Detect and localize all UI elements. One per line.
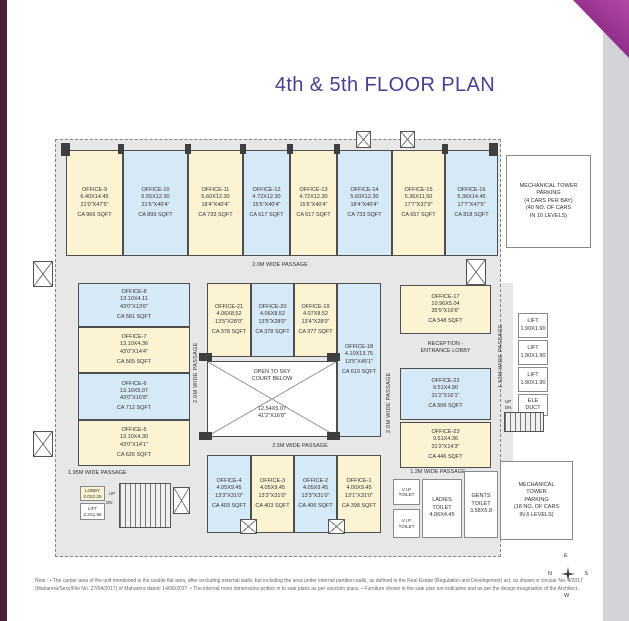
lift-2: LIFT 1.90X1.90 — [518, 340, 548, 365]
office-3: OFFICE-3 4.05X9.45 13'3"X31'0" CA 403 SQ… — [251, 455, 294, 533]
vip-toilet-2: V.I.P TOILET — [393, 509, 420, 538]
office-7-name: OFFICE-7 — [121, 334, 146, 341]
lift-1: LIFT 1.90X1.90 — [518, 313, 548, 338]
office-14-dims: 5.60X12.30 18'4"X40'4" — [350, 194, 378, 208]
office-19-area: CA 377 SQFT — [298, 329, 332, 336]
office-6: OFFICE-6 13.10X5.07 43'0"X16'8" CA 712 S… — [78, 373, 190, 420]
office-9-name: OFFICE-9 — [82, 187, 107, 194]
office-19-name: OFFICE-19 — [301, 304, 329, 311]
office-4-name: OFFICE-4 — [216, 478, 241, 485]
office-11-area: CA 733 SQFT — [198, 212, 232, 219]
office-15: OFFICE-15 5.36X11.50 17'7"X37'9" CA 657 … — [392, 150, 445, 256]
office-11-name: OFFICE-11 — [202, 187, 230, 194]
office-11: OFFICE-11 5.60X12.30 18'4"X40'4" CA 733 … — [188, 150, 243, 256]
wall-pier — [442, 144, 448, 154]
office-21-area: CA 378 SQFT — [212, 329, 246, 336]
office-22: OFFICE-22 9.51X4.90 31'2"X16'1" CA 506 S… — [400, 368, 491, 420]
lift-3: LIFT 1.90X1.90 — [518, 367, 548, 392]
office-18-name: OFFICE-18 — [345, 344, 373, 351]
stairs-left — [119, 483, 171, 528]
wall-pier — [240, 144, 246, 154]
passage-far-right-vertical-label: 1.52M WIDE PASSAGE — [498, 302, 504, 410]
office-10: OFFICE-10 6.55X12.30 21'6"X40'4" CA 899 … — [123, 150, 188, 256]
office-23-name: OFFICE-23 — [431, 429, 459, 436]
shaft-bottom-1 — [240, 519, 257, 534]
stairs-right-up-label: UP — [505, 399, 511, 405]
office-16-name: OFFICE-16 — [457, 187, 485, 194]
office-19-dims: 4.07X8.52 13'4"X28'0" — [301, 311, 329, 325]
office-16: OFFICE-16 5.36X14.45 17'7"X47'5" CA 818 … — [445, 150, 498, 256]
office-3-name: OFFICE-3 — [260, 478, 285, 485]
office-13-area: CA 617 SQFT — [296, 212, 330, 219]
office-21-dims: 4.06X8.52 13'5"X28'0" — [215, 311, 243, 325]
stairs-right-dn-label: DN — [505, 405, 512, 411]
office-17-area: CA 548 SQFT — [428, 318, 462, 325]
wall-pier — [61, 143, 70, 156]
court-label: OPEN TO SKY COURT BELOW — [208, 369, 336, 383]
duct-shaft-bottom-left — [173, 487, 190, 514]
office-6-dims: 13.10X5.07 43'0"X16'8" — [120, 388, 148, 402]
disclaimer-note-line1: Note : • The carpet area of the unit men… — [35, 578, 583, 586]
shaft-left-bottom — [33, 431, 53, 457]
office-13: OFFICE-13 4.72X12.30 15'6"X40'4" CA 617 … — [290, 150, 337, 256]
office-23: OFFICE-23 9.51X4.36 31'2"X14'3" CA 446 S… — [400, 422, 491, 468]
office-5-area: CA 626 SQFT — [117, 452, 151, 459]
disclaimer-note-line2: (Maharera/Secy/File No. 27/04/2017) of M… — [35, 586, 583, 594]
office-7-area: CA 565 SQFT — [117, 359, 151, 366]
office-22-name: OFFICE-22 — [431, 378, 459, 385]
mechanical-tower-parking-top: MECHANICAL TOWER PARKING (4 CARS PER BAY… — [506, 155, 591, 248]
stairs-right — [504, 412, 544, 432]
office-18: OFFICE-18 4.10X13.75 13'5"X45'1" CA 610 … — [337, 283, 381, 437]
shaft-top-2 — [400, 131, 415, 148]
office-2-dims: 4.05X9.45 13'3"X31'0" — [301, 485, 329, 499]
shaft-left-top — [33, 261, 53, 287]
office-23-area: CA 446 SQFT — [428, 454, 462, 461]
office-2-area: CA 406 SQFT — [298, 503, 332, 510]
office-8-area: CA 581 SQFT — [117, 314, 151, 321]
office-23-dims: 9.51X4.36 31'2"X14'3" — [431, 436, 459, 450]
office-19: OFFICE-19 4.07X8.52 13'4"X28'0" CA 377 S… — [294, 283, 337, 357]
office-17: OFFICE-17 10.96X5.04 35'9"X16'6" CA 548 … — [400, 285, 491, 334]
office-13-dims: 4.72X12.30 15'6"X40'4" — [299, 194, 327, 208]
wall-pier — [185, 144, 191, 154]
office-6-name: OFFICE-6 — [121, 381, 146, 388]
mechanical-tower-parking-bottom: MECHANICAL TOWER PARKING (18 NO. OF CARS… — [500, 461, 573, 540]
office-22-area: CA 506 SQFT — [428, 403, 462, 410]
shaft-right-passage — [466, 259, 486, 285]
office-14-area: CA 733 SQFT — [347, 212, 381, 219]
left-edge-bar — [0, 0, 7, 621]
office-7-dims: 13.10X4.36 43'0"X14'4" — [120, 341, 148, 355]
office-10-name: OFFICE-10 — [141, 187, 169, 194]
office-12-area: CA 617 SQFT — [249, 212, 283, 219]
office-3-area: CA 403 SQFT — [255, 503, 289, 510]
office-10-area: CA 899 SQFT — [138, 212, 172, 219]
office-5-name: OFFICE-5 — [121, 427, 146, 434]
office-14: OFFICE-14 5.60X12.30 18'4"X40'4" CA 733 … — [337, 150, 392, 256]
compass-south-label: S — [584, 571, 588, 577]
passage-right-vertical-label: 2.0M WIDE PASSAGE — [386, 348, 392, 458]
office-18-dims: 4.10X13.75 13'5"X45'1" — [345, 351, 373, 365]
lift-bottom-left: LIFT 2.2X1.95 — [80, 503, 105, 520]
office-21: OFFICE-21 4.06X8.52 13'5"X28'0" CA 378 S… — [207, 283, 251, 357]
office-15-dims: 5.36X11.50 17'7"X37'9" — [404, 194, 432, 208]
passage-bottom-left-label: 1.95M WIDE PASSAGE — [68, 470, 178, 477]
office-17-name: OFFICE-17 — [431, 294, 459, 301]
office-16-area: CA 818 SQFT — [454, 212, 488, 219]
passage-mid-label: 2.5M WIDE PASSAGE — [240, 443, 360, 450]
office-9-dims: 6.40X14.45 21'0"X47'5" — [80, 194, 108, 208]
passage-top-label: 2.0M WIDE PASSAGE — [220, 262, 340, 269]
office-20: OFFICE-20 4.06X8.52 13'5"X28'0" CA 378 S… — [251, 283, 294, 357]
reception-label: RECEPTION - ENTRANCE LOBBY — [400, 341, 491, 355]
court-dims: 12.54X5.07 41'2"X16'8" — [208, 406, 336, 420]
office-3-dims: 4.05X9.45 13'3"X31'0" — [258, 485, 286, 499]
wall-pier — [489, 143, 498, 156]
stairs-left-up-label: UP — [109, 491, 115, 497]
right-page-margin — [603, 0, 629, 621]
office-5-dims: 13.10X4.30 43'0"X14'1" — [120, 434, 148, 448]
open-to-sky-court: OPEN TO SKY COURT BELOW 12.54X5.07 41'2"… — [207, 361, 337, 437]
office-9: OFFICE-9 6.40X14.45 21'0"X47'5" CA 966 S… — [66, 150, 123, 256]
shaft-bottom-2 — [328, 519, 345, 534]
office-12-name: OFFICE-12 — [252, 187, 280, 194]
wall-pier — [327, 353, 340, 361]
office-21-name: OFFICE-21 — [215, 304, 243, 311]
office-12: OFFICE-12 4.72X12.30 15'6"X40'4" CA 617 … — [243, 150, 290, 256]
passage-left-vertical-label: 2.0M WIDE PASSAGE — [193, 300, 199, 445]
office-2-name: OFFICE-2 — [303, 478, 328, 485]
office-20-name: OFFICE-20 — [258, 304, 286, 311]
page-title: 4th & 5th FLOOR PLAN — [250, 74, 520, 97]
lobby-box: LOBBY 2.0X2.25 — [80, 486, 105, 501]
office-18-area: CA 610 SQFT — [342, 369, 376, 376]
wall-pier — [199, 353, 212, 361]
office-20-area: CA 378 SQFT — [255, 329, 289, 336]
wall-pier — [334, 144, 340, 154]
office-12-dims: 4.72X12.30 15'6"X40'4" — [252, 194, 280, 208]
stairs-left-dn-label: DN — [106, 500, 113, 506]
office-8-dims: 13.10X4.11 43'0"X13'6" — [120, 296, 148, 310]
office-10-dims: 6.55X12.30 21'6"X40'4" — [141, 194, 169, 208]
office-4-area: CA 403 SQFT — [212, 503, 246, 510]
office-5: OFFICE-5 13.10X4.30 43'0"X14'1" CA 626 S… — [78, 420, 190, 466]
office-1-name: OFFICE-1 — [346, 478, 371, 485]
office-11-dims: 5.60X12.30 18'4"X40'4" — [201, 194, 229, 208]
office-1-area: CA 398 SQFT — [342, 503, 376, 510]
office-4-dims: 4.05X9.45 13'3"X31'0" — [215, 485, 243, 499]
vip-toilet-1: V.I.P TOILET — [393, 479, 420, 505]
compass-west-label: W — [564, 593, 569, 599]
compass-east-label: E — [564, 553, 568, 559]
wall-pier — [287, 144, 293, 154]
office-13-name: OFFICE-13 — [299, 187, 327, 194]
disclaimer-note: Note : • The carpet area of the unit men… — [35, 578, 583, 593]
office-8-name: OFFICE-8 — [121, 289, 146, 296]
office-15-area: CA 657 SQFT — [401, 212, 435, 219]
shaft-top-1 — [356, 131, 371, 148]
gents-toilet: GENTS TOILET 3.58X5.8 — [464, 471, 498, 538]
office-1-dims: 4.00X9.45 13'1"X31'0" — [345, 485, 373, 499]
wall-pier — [327, 432, 340, 440]
office-14-name: OFFICE-14 — [350, 187, 378, 194]
compass-north-label: N — [548, 571, 552, 577]
office-15-name: OFFICE-15 — [404, 187, 432, 194]
office-6-area: CA 712 SQFT — [117, 405, 151, 412]
office-22-dims: 9.51X4.90 31'2"X16'1" — [431, 385, 459, 399]
office-8: OFFICE-8 13.10X4.11 43'0"X13'6" CA 581 S… — [78, 283, 190, 327]
floor-plan-page: 4th & 5th FLOOR PLAN OFFICE-9 6.40X14.45… — [0, 0, 629, 621]
wall-pier — [199, 432, 212, 440]
wall-pier — [118, 144, 124, 154]
office-9-area: CA 966 SQFT — [77, 212, 111, 219]
ladies-toilet: LADIES TOILET 4.06X4.45 — [422, 479, 462, 538]
office-7: OFFICE-7 13.10X4.36 43'0"X14'4" CA 565 S… — [78, 327, 190, 373]
office-16-dims: 5.36X14.45 17'7"X47'5" — [457, 194, 485, 208]
office-17-dims: 10.96X5.04 35'9"X16'6" — [431, 301, 459, 315]
office-20-dims: 4.06X8.52 13'5"X28'0" — [258, 311, 286, 325]
